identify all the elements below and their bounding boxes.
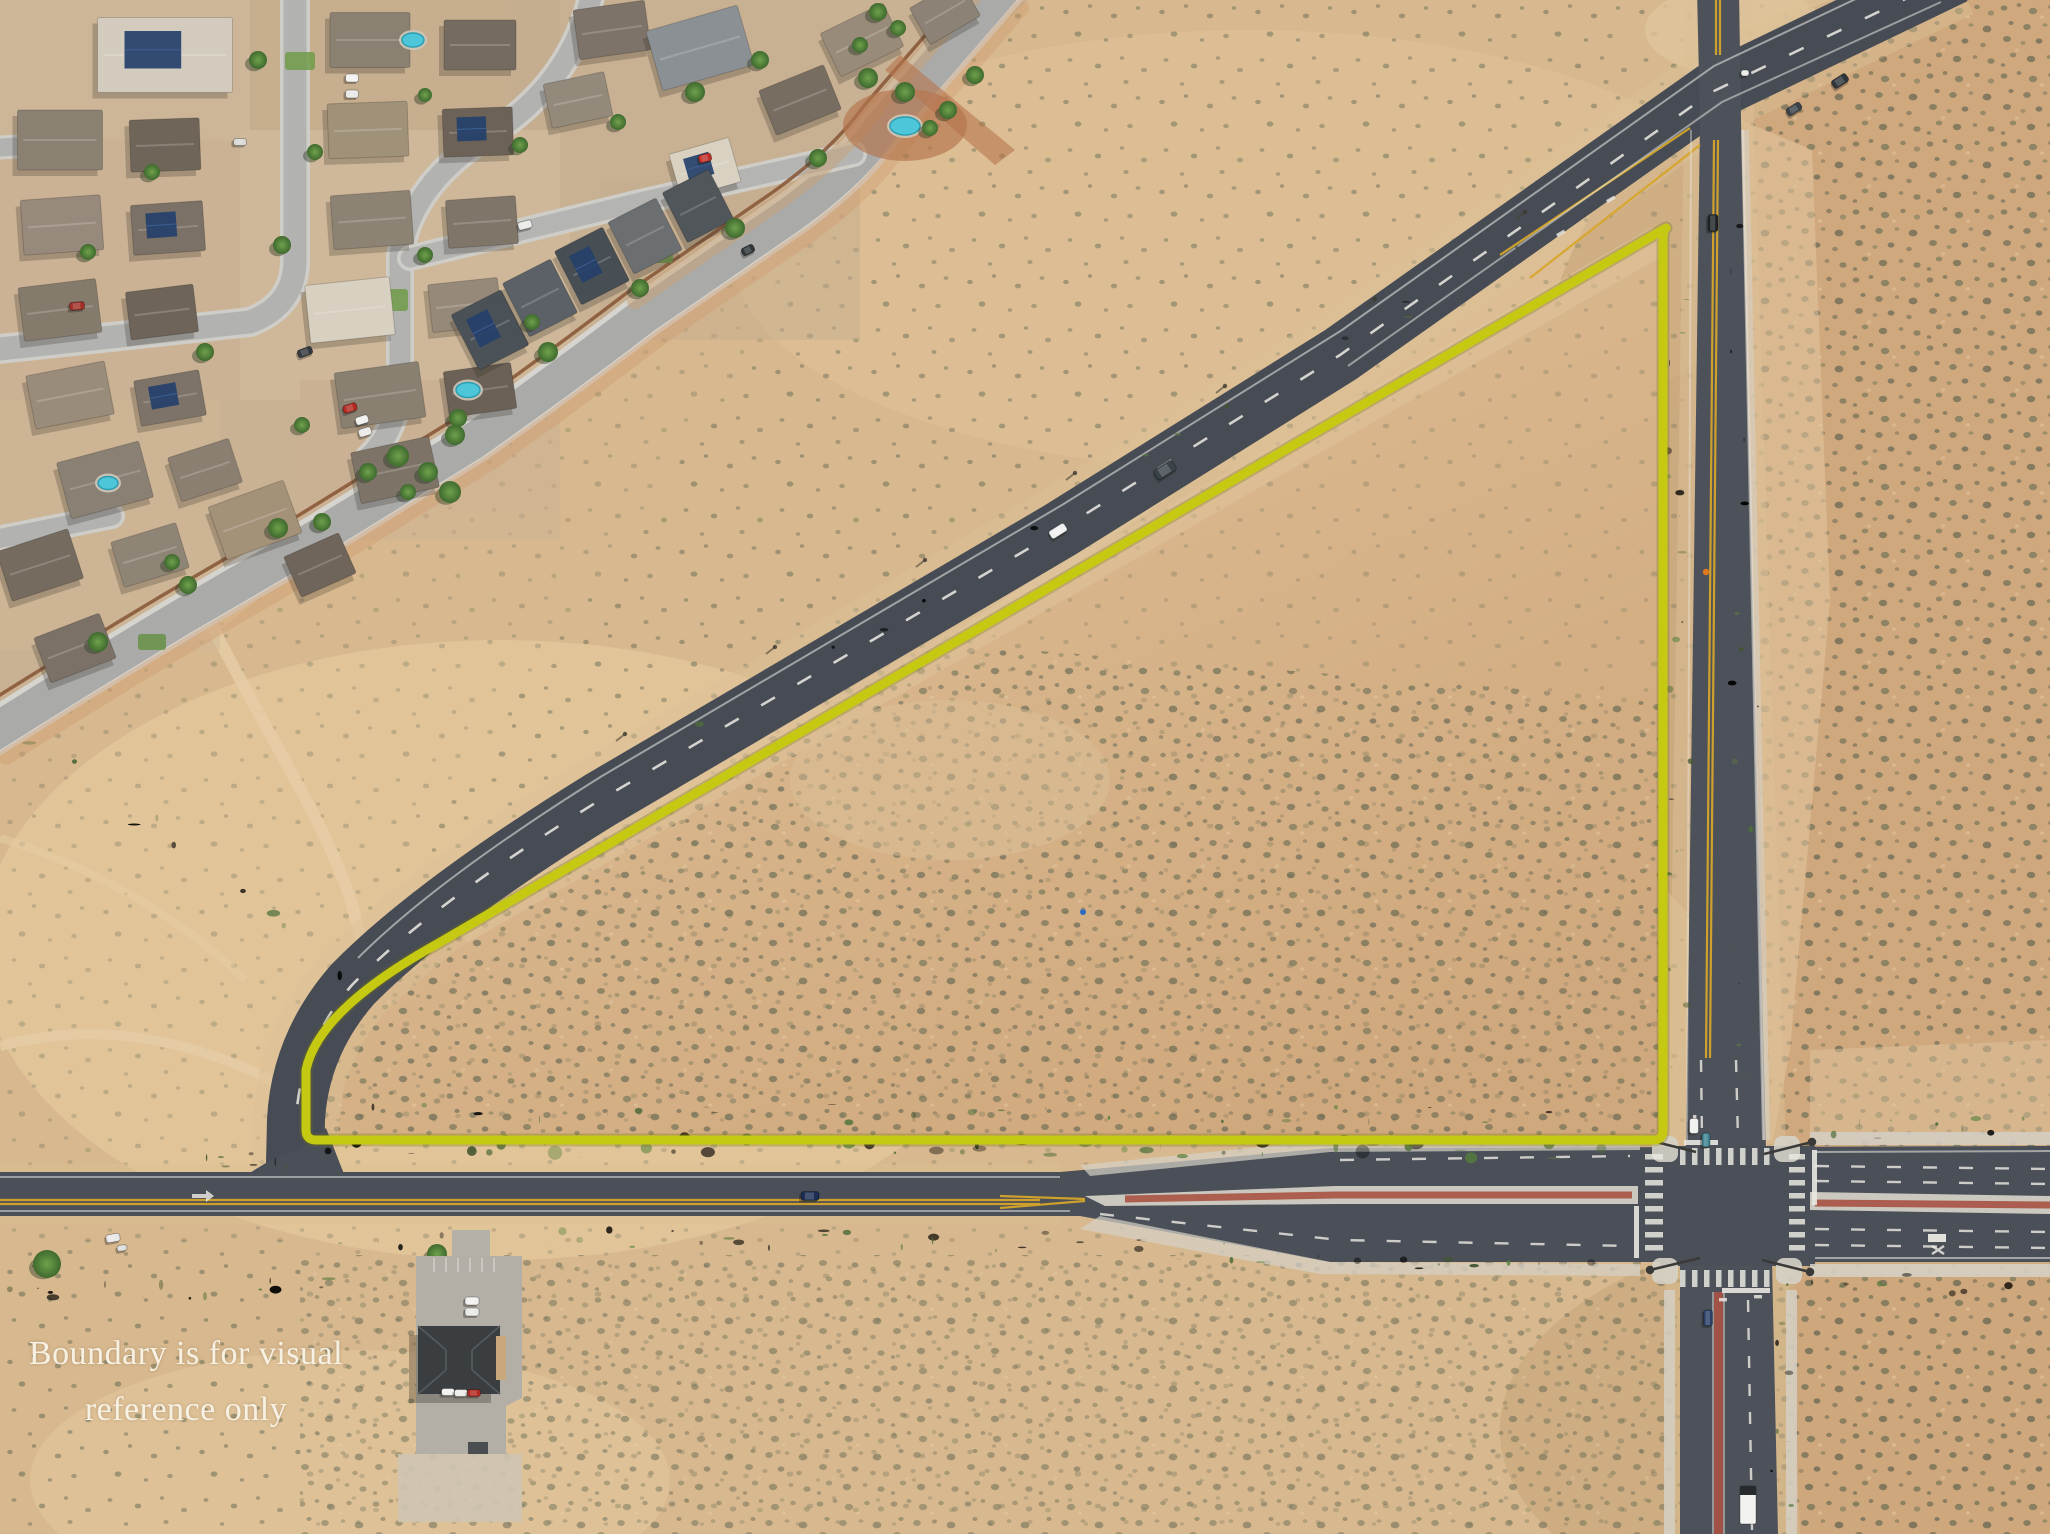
- vertical-road-south: [1680, 1262, 1778, 1534]
- roadside-marker: [1703, 569, 1709, 575]
- tree: [439, 481, 461, 503]
- house: [120, 284, 199, 346]
- car: [440, 1389, 455, 1398]
- house: [440, 196, 519, 255]
- tree: [80, 244, 96, 260]
- tree: [268, 518, 288, 538]
- car: [1706, 215, 1718, 234]
- car: [463, 1297, 479, 1307]
- tree: [538, 342, 558, 362]
- tree: [631, 279, 649, 297]
- watermark-line2: reference only: [0, 1382, 372, 1438]
- house: [568, 0, 652, 66]
- house: [325, 190, 414, 256]
- bus-pad: [1928, 1234, 1946, 1242]
- tree: [725, 218, 745, 238]
- tree: [313, 513, 331, 531]
- tree: [273, 236, 291, 254]
- aerial-photo: Boundary is for visual reference only: [0, 0, 2050, 1534]
- tree: [858, 68, 878, 88]
- tree: [685, 82, 705, 102]
- house: [124, 118, 201, 179]
- tree: [445, 425, 465, 445]
- tree: [387, 445, 409, 467]
- tree: [249, 51, 267, 69]
- tree: [449, 409, 467, 427]
- tree: [179, 576, 197, 594]
- car: [1700, 1133, 1710, 1149]
- tree: [869, 3, 887, 21]
- tree: [418, 462, 438, 482]
- tree: [852, 37, 868, 53]
- tree: [418, 88, 432, 102]
- tree: [164, 554, 180, 570]
- tree: [524, 314, 540, 330]
- watermark: Boundary is for visual reference only: [0, 1326, 372, 1438]
- house: [322, 101, 409, 165]
- building-site: [398, 1230, 522, 1522]
- tree: [307, 144, 323, 160]
- tree: [751, 51, 769, 69]
- house: [13, 110, 103, 176]
- tree: [359, 463, 377, 481]
- car: [344, 74, 359, 84]
- tree: [610, 114, 626, 130]
- aerial-photo-canvas: [0, 0, 2050, 1534]
- driveway: [452, 1230, 490, 1258]
- car: [466, 1390, 481, 1399]
- house: [93, 18, 233, 99]
- tree: [922, 120, 938, 136]
- house: [439, 20, 516, 76]
- house: [13, 278, 103, 348]
- tree: [512, 137, 528, 153]
- tree: [417, 247, 433, 263]
- watermark-line1: Boundary is for visual: [0, 1326, 372, 1382]
- truck: [1740, 1486, 1756, 1524]
- tree: [966, 66, 984, 84]
- car: [799, 1192, 819, 1203]
- car: [1702, 1310, 1713, 1328]
- tree: [33, 1250, 61, 1278]
- tree: [88, 632, 108, 652]
- tree: [895, 82, 915, 102]
- car: [453, 1390, 468, 1399]
- tree: [890, 20, 906, 36]
- house: [325, 13, 410, 74]
- tree: [196, 343, 214, 361]
- house: [125, 201, 206, 262]
- shed: [468, 1442, 488, 1454]
- car: [232, 139, 247, 148]
- car: [463, 1308, 479, 1318]
- tree: [400, 484, 416, 500]
- tree: [144, 164, 160, 180]
- house: [437, 107, 514, 164]
- house: [329, 361, 427, 435]
- tree: [294, 417, 310, 433]
- house: [300, 277, 396, 350]
- tree: [809, 149, 827, 167]
- car: [1688, 1119, 1699, 1136]
- tree: [939, 101, 957, 119]
- car: [344, 90, 359, 100]
